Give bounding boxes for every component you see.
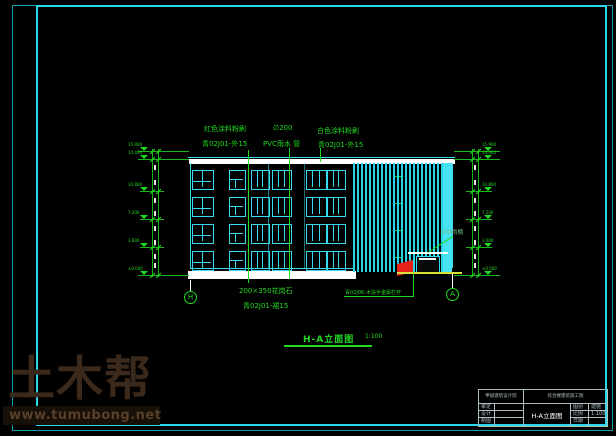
- dim-text-dash: [154, 198, 157, 203]
- railing-leader-underline: [344, 296, 414, 297]
- dim-text-dash: [474, 240, 477, 245]
- watermark-url-bar: www.tumubong.net: [3, 406, 160, 425]
- window: [229, 170, 246, 190]
- dim-text-dash: [154, 211, 157, 216]
- window: [192, 170, 214, 190]
- title-block-project: 综合楼建筑施工图: [523, 389, 608, 404]
- level-marker-icon: [484, 155, 492, 159]
- axis-bubble-right: A: [446, 288, 459, 301]
- watermark-logo: 土木帮: [8, 352, 152, 408]
- level-marker-icon: [484, 243, 492, 247]
- title-block-value: [588, 417, 608, 427]
- drawing-title: H-A立面图: [303, 332, 354, 345]
- dim-extension-line: [138, 275, 189, 276]
- level-value: 7.200: [128, 210, 139, 215]
- level-value: ±0.000: [128, 266, 143, 271]
- level-value: 3.600: [482, 238, 493, 243]
- facade-joint-line: [304, 163, 305, 268]
- red-paint-leader-line: [248, 150, 249, 283]
- stripe: [365, 163, 367, 272]
- window: [306, 224, 327, 244]
- granite-label: 200×350花岗石: [239, 286, 293, 296]
- axis-line-right: [452, 274, 453, 288]
- stripe: [361, 163, 363, 272]
- dim-text-dash: [474, 226, 477, 231]
- window: [192, 224, 214, 244]
- red-paint-label: 红色涂料粉刷: [204, 124, 246, 134]
- level-value: 10.800: [128, 182, 142, 187]
- title-block-company: 甲级建筑设计院: [478, 389, 524, 404]
- level-value: 10.800: [482, 182, 496, 187]
- stripe: [405, 163, 407, 272]
- level-value: 14.400: [482, 150, 496, 155]
- stripe: [357, 163, 359, 272]
- window: [327, 197, 346, 217]
- sheet-inner-border-right: [605, 5, 607, 426]
- stripe: [381, 163, 383, 272]
- window: [192, 251, 214, 271]
- dim-text-dash: [474, 263, 477, 268]
- red-paint-code: 青02J01-外15: [202, 139, 247, 149]
- white-paint-code: 青02J01-外15: [318, 140, 363, 150]
- canopy-label: 彩钢雨棚: [441, 228, 463, 236]
- window: [229, 224, 246, 244]
- granite-code: 青02J01-裙15: [243, 301, 288, 311]
- door-transom: [419, 258, 436, 260]
- stripe: [369, 163, 371, 272]
- dim-text-dash: [154, 165, 157, 170]
- window: [229, 251, 246, 271]
- stripe: [413, 163, 415, 272]
- dim-text-dash: [154, 254, 157, 259]
- window: [251, 224, 270, 244]
- white-paint-label: 白色涂料粉刷: [317, 126, 359, 136]
- level-marker-icon: [484, 187, 492, 191]
- window: [327, 224, 346, 244]
- dim-text-dash: [474, 211, 477, 216]
- axis-bubble-left: H: [184, 291, 197, 304]
- stripe: [385, 163, 387, 272]
- level-value: 7.200: [482, 210, 493, 215]
- dim-text-dash: [154, 240, 157, 245]
- sheet-inner-border-top: [36, 5, 607, 7]
- stripe: [401, 163, 403, 272]
- window: [251, 170, 270, 190]
- window: [306, 197, 327, 217]
- dim-extension-line: [138, 159, 189, 160]
- level-marker-icon: [484, 271, 492, 275]
- stripe: [389, 163, 391, 272]
- dim-text-dash: [154, 180, 157, 185]
- dim-text-dash: [474, 254, 477, 259]
- plinth-band: [188, 271, 356, 279]
- title-block-value: [494, 417, 524, 427]
- window: [251, 197, 270, 217]
- window: [229, 197, 246, 217]
- level-marker-icon: [140, 243, 148, 247]
- watermark-url: www.tumubong.net: [9, 408, 161, 423]
- dim-text-dash: [154, 226, 157, 231]
- window: [327, 251, 346, 271]
- level-marker-icon: [140, 155, 148, 159]
- stripe: [353, 163, 355, 272]
- parapet-line: [188, 157, 455, 158]
- level-value: 3.600: [128, 238, 139, 243]
- window: [192, 197, 214, 217]
- stripe: [397, 163, 399, 272]
- wall-right-edge: [452, 163, 453, 268]
- pvc-pipe-line: [289, 148, 290, 279]
- dim-text-dash: [154, 263, 157, 268]
- white-paint-leader-line: [320, 148, 321, 162]
- title-block-label: 制图: [478, 417, 495, 427]
- window: [306, 170, 327, 190]
- stripe: [377, 163, 379, 272]
- level-marker-icon: [140, 215, 148, 219]
- cad-canvas: 红色涂料粉刷 青02J01-外15 ∅200 PVC雨水 管 白色涂料粉刷 青0…: [0, 0, 616, 436]
- level-value: 14.400: [128, 150, 142, 155]
- stripe: [373, 163, 375, 272]
- stripe: [409, 163, 411, 272]
- dim-chain-line: [158, 149, 159, 277]
- dim-text-dash: [474, 165, 477, 170]
- railing-leader-line: [413, 274, 414, 296]
- axis-line-left: [190, 280, 191, 291]
- title-block-label: 日期: [570, 417, 589, 427]
- window: [251, 251, 270, 271]
- dim-extension-line: [138, 151, 189, 152]
- window: [327, 170, 346, 190]
- railing-note: 青02J06-木扶手金属栏杆: [345, 289, 401, 296]
- level-value: ±0.000: [482, 266, 497, 271]
- pvc-diameter-label: ∅200: [273, 124, 292, 132]
- curtain-wall-solid-band: [443, 163, 452, 272]
- level-marker-icon: [140, 271, 148, 275]
- title-block-drawing-name: H-A立面图: [523, 403, 571, 427]
- drawing-title-underline: [284, 345, 372, 347]
- window: [306, 251, 327, 271]
- stripe: [393, 163, 395, 272]
- level-marker-icon: [484, 215, 492, 219]
- drawing-scale: 1:100: [365, 333, 382, 340]
- level-value: 15.900: [482, 142, 496, 147]
- level-marker-icon: [140, 187, 148, 191]
- dim-chain-line: [478, 149, 479, 277]
- wall-left-edge: [190, 163, 191, 268]
- dim-text-dash: [474, 198, 477, 203]
- dim-text-dash: [474, 180, 477, 185]
- level-value: 15.900: [128, 142, 142, 147]
- pvc-pipe-label: PVC雨水 管: [263, 139, 300, 149]
